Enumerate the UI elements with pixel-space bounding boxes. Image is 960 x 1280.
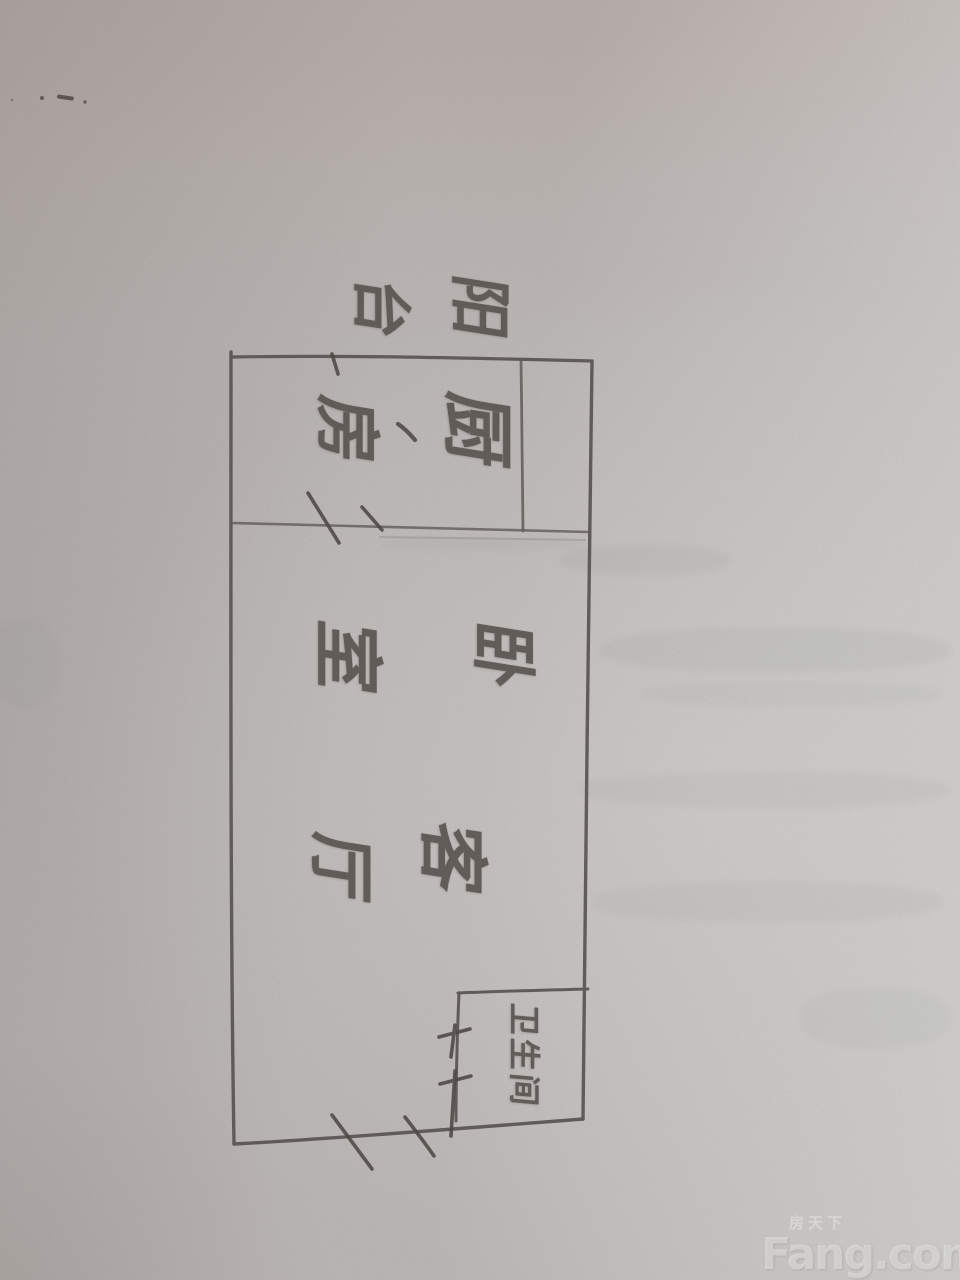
bathroom-wall-top (458, 989, 588, 993)
door-jamb-bathroom-1b (451, 1025, 455, 1057)
door-slash-bottom-2 (405, 1117, 434, 1156)
paper-showthrough-smudge (380, 538, 585, 550)
bathroom-wall-left (456, 993, 459, 1121)
divider-kitchen-horizontal (231, 523, 588, 532)
paper-showthrough-smudge (0, 618, 60, 708)
paper-showthrough-smudge (600, 628, 950, 672)
label-livingroom-char-ke: 客 (417, 817, 487, 898)
door-tick-kitchen (362, 507, 382, 530)
wall-top (233, 356, 592, 361)
label-kitchen-char-chu: 厨 (441, 388, 513, 471)
door-jamb-bathroom-1a (439, 1029, 470, 1037)
watermark-fang: 房天下 Fang.com (761, 1212, 957, 1270)
label-livingroom-char-ting: 厅 (307, 829, 373, 905)
wall-left (231, 352, 234, 1144)
door-slash-bottom-1 (332, 1115, 372, 1169)
wall-bottom (234, 1119, 583, 1144)
watermark-en-text: Fang.com (761, 1233, 960, 1277)
pause-mark-kitchen (398, 424, 415, 440)
label-bedroom-char-shi: 室 (312, 616, 382, 697)
door-slash-kitchen (308, 493, 339, 543)
door-jamb-bathroom-2b (451, 1071, 455, 1136)
label-bathroom: 卫生间 (508, 1002, 540, 1110)
paper-showthrough-smudge (560, 545, 730, 575)
label-balcony-char-tai: 台 (350, 273, 410, 343)
ink-specks (11, 94, 87, 103)
door-jamb-bathroom-2a (440, 1076, 471, 1084)
wall-right (583, 361, 592, 1119)
photo-of-floorplan-sketch: 阳 台 厨 房 卧 室 客 厅 卫生间 房天下 Fang.com (0, 0, 960, 1280)
paper-showthrough-smudge (800, 988, 950, 1048)
paper-showthrough-smudge (580, 772, 950, 808)
divider-kitchen-vertical (521, 362, 523, 531)
label-balcony-char-yang: 阳 (448, 271, 510, 343)
door-tick-top-wall (332, 354, 338, 374)
paper-showthrough-smudge (592, 882, 942, 922)
label-kitchen-char-fang: 房 (313, 392, 379, 468)
paper-showthrough-smudge (640, 682, 940, 706)
label-bedroom-char-wo: 卧 (469, 617, 535, 693)
